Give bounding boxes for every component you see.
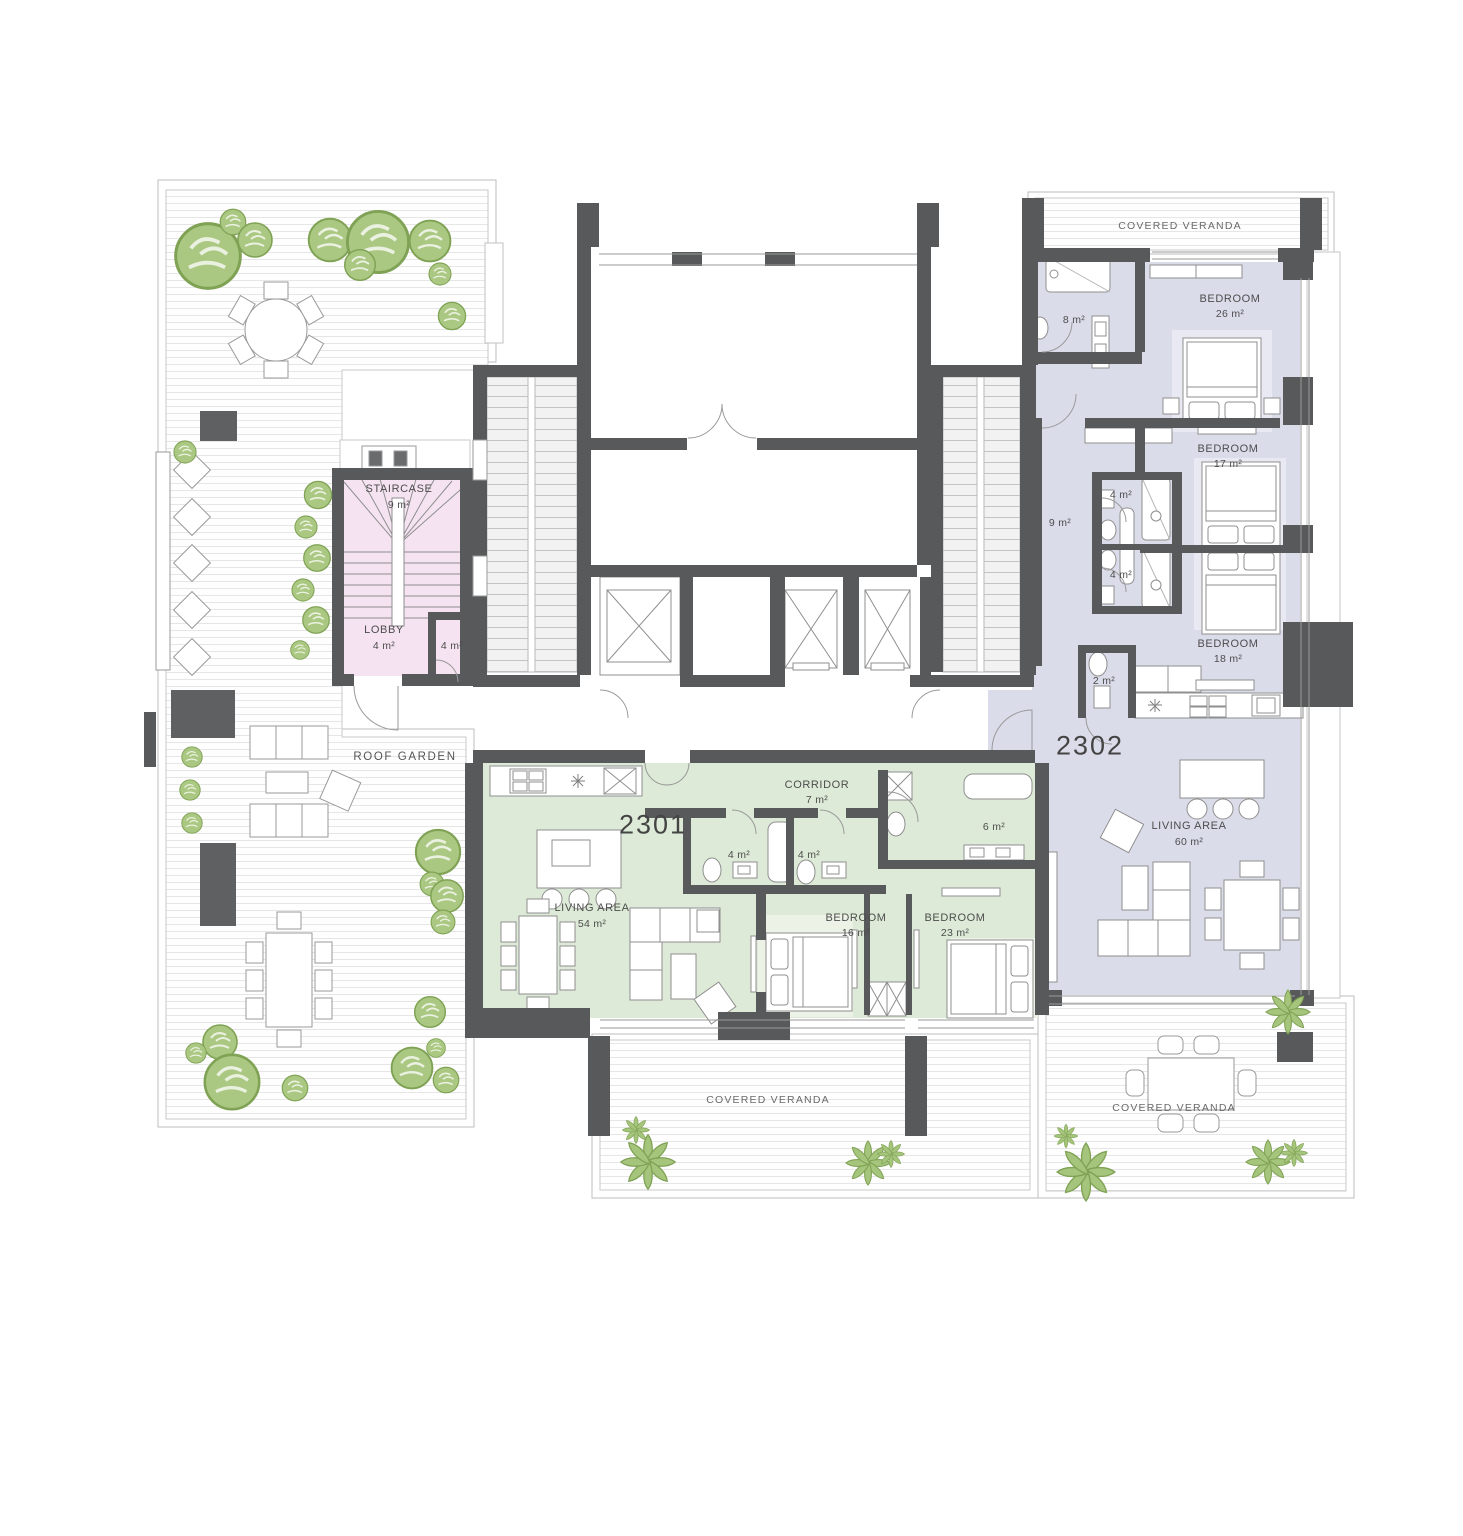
floor-plan-drawing: [0, 0, 1463, 1536]
bath-2302-a-area: 4 m²: [1110, 489, 1132, 501]
bed-2301-16: [766, 933, 852, 1011]
bath-2302-8-area: 8 m²: [1063, 314, 1085, 326]
bedroom-16-label: BEDROOM: [825, 912, 886, 924]
unit-2302-number: 2302: [1056, 731, 1124, 762]
bedroom-18-label: BEDROOM: [1197, 638, 1258, 650]
veranda-bottom-right-label: COVERED VERANDA: [1112, 1102, 1236, 1114]
lobby-area: 4 m²: [373, 640, 395, 652]
stairwell-right: [943, 377, 1020, 672]
living-2302-label: LIVING AREA: [1151, 820, 1226, 832]
lobby-wc-area: 4 m²: [441, 640, 463, 652]
floor-plan: ROOF GARDEN COVERED VERANDA COVERED VERA…: [0, 0, 1463, 1536]
bedroom-23-label: BEDROOM: [924, 912, 985, 924]
living-2301-area: 54 m²: [578, 918, 606, 930]
stairwell-left: [487, 377, 577, 672]
bed-2301-23: [947, 940, 1033, 1018]
living-2301-label: LIVING AREA: [554, 902, 629, 914]
bed-2302-18: [1202, 548, 1280, 634]
bath-2302-b-area: 4 m²: [1110, 569, 1132, 581]
bed-2302-17: [1202, 462, 1280, 548]
hall-2302-9-area: 9 m²: [1049, 517, 1071, 529]
bath-2301-a-area: 4 m²: [728, 849, 750, 861]
living-2302-area: 60 m²: [1175, 836, 1203, 848]
corridor-2301-label: CORRIDOR: [785, 779, 850, 791]
veranda-bottom-center-label: COVERED VERANDA: [706, 1094, 830, 1106]
garden-bench: [362, 446, 416, 471]
bedroom-16-area: 16 m²: [842, 927, 870, 939]
staircase-label: STAIRCASE: [366, 483, 433, 495]
unit-2301-number: 2301: [619, 810, 687, 841]
bedroom-23-area: 23 m²: [941, 927, 969, 939]
bedroom-17-area: 17 m²: [1214, 458, 1242, 470]
island-2302: [1180, 760, 1264, 819]
roof-garden-label: ROOF GARDEN: [353, 751, 456, 763]
elevators: [600, 577, 910, 675]
staircase-area: 9 m²: [388, 499, 410, 511]
corridor-2301-area: 7 m²: [806, 794, 828, 806]
bedroom-17-label: BEDROOM: [1197, 443, 1258, 455]
wc-2302-2-area: 2 m²: [1093, 675, 1115, 687]
bed-2302-26: [1183, 338, 1261, 424]
lobby-label: LOBBY: [364, 624, 404, 636]
bedroom-26-label: BEDROOM: [1199, 293, 1260, 305]
bath-2301-6-area: 6 m²: [983, 821, 1005, 833]
bath-2301-b-area: 4 m²: [798, 849, 820, 861]
bedroom-26-area: 26 m²: [1216, 308, 1244, 320]
bedroom-18-area: 18 m²: [1214, 653, 1242, 665]
veranda-top-right-label: COVERED VERANDA: [1118, 220, 1242, 232]
